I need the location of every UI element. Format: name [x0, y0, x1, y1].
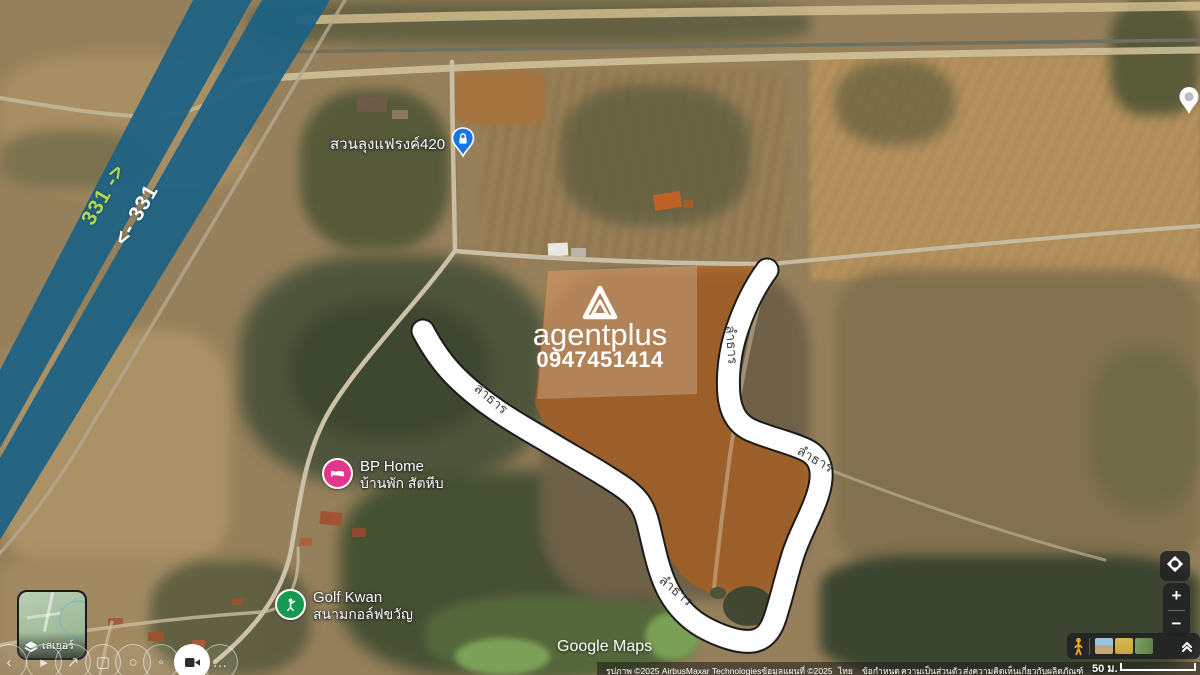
imagery-thumbnail[interactable]: [1095, 638, 1113, 654]
double-chevron-up-icon[interactable]: [1180, 639, 1194, 653]
video-icon: [184, 656, 201, 669]
lock-pin-icon[interactable]: [450, 127, 476, 163]
zoom-in-button[interactable]: +: [1163, 583, 1190, 610]
attribution-imagery: รูปภาพ ©2025 AirbusMaxar Technologiesข้อ…: [606, 664, 833, 675]
poi-farm-label[interactable]: สวนลุงแฟรงค์420: [330, 136, 445, 153]
minimap-road: [27, 612, 61, 620]
poi-bp-home-label[interactable]: BP Home บ้านพัก สัตหีบ: [360, 458, 444, 491]
white-pin-icon[interactable]: [1177, 86, 1200, 121]
poi-golf-kwan-label[interactable]: Golf Kwan สนามกอล์ฟขวัญ: [313, 589, 413, 622]
watermark-phone: 0947451414: [536, 347, 664, 372]
attribution-privacy-link[interactable]: ความเป็นส่วนตัว: [901, 664, 962, 675]
scale-bar: [1120, 663, 1196, 671]
poi-golf-kwan[interactable]: Golf Kwan สนามกอล์ฟขวัญ: [275, 589, 413, 622]
lodging-icon[interactable]: [322, 458, 353, 489]
map-overlay: ลำธาร ลำธาร ลำธาร ลำธาร agentplus 094745…: [0, 0, 1200, 675]
my-location-button[interactable]: [1160, 551, 1190, 581]
scale-text: 50 ม.: [1092, 659, 1118, 675]
map-canvas[interactable]: ลำธาร ลำธาร ลำธาร ลำธาร agentplus 094745…: [0, 0, 1200, 675]
imagery-tray: [1067, 633, 1200, 659]
toolbar-more-button[interactable]: …: [202, 644, 238, 675]
attribution-terms-link[interactable]: ข้อกำหนด: [862, 664, 900, 675]
tray-divider: [1089, 638, 1090, 655]
attribution-region: ไทย: [838, 664, 853, 675]
poi-bp-home[interactable]: BP Home บ้านพัก สัตหีบ: [322, 458, 444, 491]
stream-label: ลำธาร: [723, 325, 741, 365]
imagery-thumbnail[interactable]: [1115, 638, 1133, 654]
attribution-feedback-link[interactable]: ส่งความคิดเห็นเกี่ยวกับผลิตภัณฑ์: [963, 664, 1083, 675]
zoom-control: + −: [1163, 583, 1190, 637]
google-maps-logo[interactable]: Google Maps: [557, 638, 652, 656]
my-location-icon: [1164, 553, 1186, 580]
pegman-icon[interactable]: [1073, 637, 1084, 656]
highway-331: [0, 0, 330, 540]
imagery-thumbnail[interactable]: [1135, 638, 1153, 654]
pond-trees: [710, 587, 726, 599]
poi-farm[interactable]: สวนลุงแฟรงค์420: [330, 127, 476, 163]
golf-icon[interactable]: [275, 589, 306, 620]
